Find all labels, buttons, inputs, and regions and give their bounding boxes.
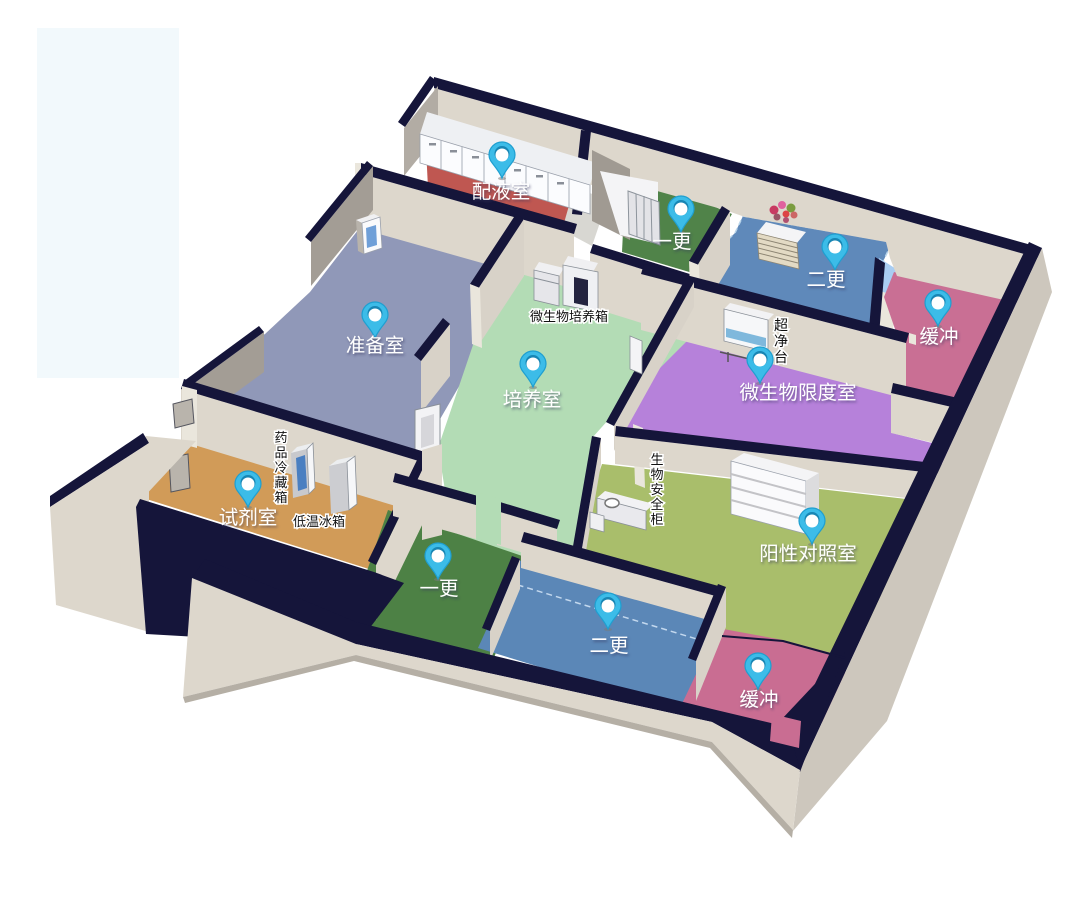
svg-text:净: 净 xyxy=(774,333,788,349)
svg-text:试剂室: 试剂室 xyxy=(219,507,278,529)
svg-text:藏: 藏 xyxy=(274,475,287,490)
svg-text:准备室: 准备室 xyxy=(346,335,405,357)
svg-text:微生物培养箱: 微生物培养箱 xyxy=(530,309,608,324)
svg-text:一更: 一更 xyxy=(652,231,691,253)
svg-text:阳性对照室: 阳性对照室 xyxy=(759,543,857,565)
svg-text:安: 安 xyxy=(650,482,663,497)
svg-text:生: 生 xyxy=(650,452,663,467)
svg-text:台: 台 xyxy=(774,349,788,365)
svg-text:全: 全 xyxy=(650,497,663,512)
svg-text:超: 超 xyxy=(774,317,788,333)
svg-text:微生物限度室: 微生物限度室 xyxy=(739,382,856,404)
svg-text:缓冲: 缓冲 xyxy=(919,326,958,348)
svg-text:二更: 二更 xyxy=(589,635,628,657)
svg-text:品: 品 xyxy=(274,445,287,460)
svg-text:一更: 一更 xyxy=(419,578,458,600)
svg-text:二更: 二更 xyxy=(806,269,845,291)
svg-text:箱: 箱 xyxy=(274,490,287,505)
svg-text:物: 物 xyxy=(650,467,663,482)
svg-text:冷: 冷 xyxy=(274,460,287,475)
svg-text:配液室: 配液室 xyxy=(472,181,531,203)
svg-text:培养室: 培养室 xyxy=(503,389,562,411)
svg-text:缓冲: 缓冲 xyxy=(739,689,778,711)
svg-text:药: 药 xyxy=(274,430,287,445)
svg-text:低温冰箱: 低温冰箱 xyxy=(293,514,345,529)
svg-text:柜: 柜 xyxy=(650,512,663,527)
